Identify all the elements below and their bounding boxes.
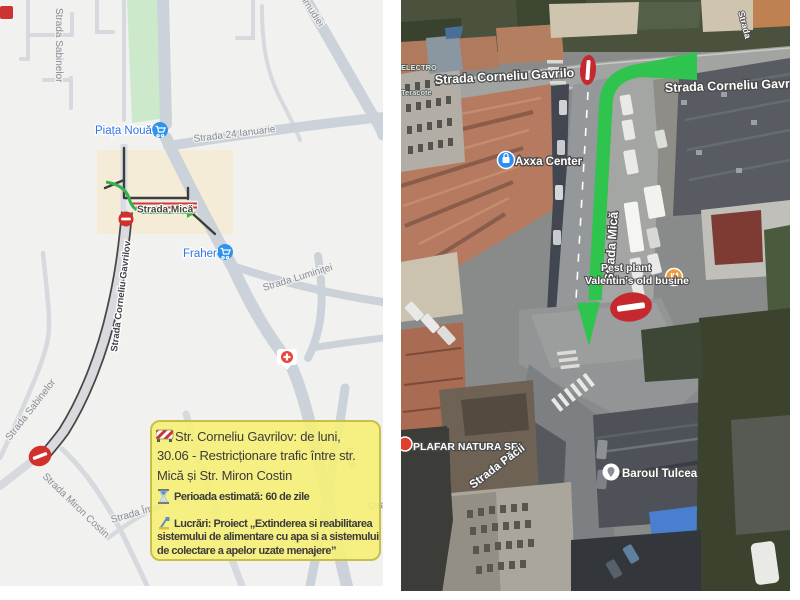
svg-text:Valentin's old busine: Valentin's old busine [585, 275, 689, 287]
svg-text:Teracote: Teracote [401, 88, 432, 97]
svg-text:Pest plant: Pest plant [601, 262, 652, 274]
svg-text:Fraher: Fraher [183, 248, 217, 260]
svg-text:Piața Nouă: Piața Nouă [95, 125, 153, 137]
svg-text:Axxa Center: Axxa Center [515, 156, 583, 168]
svg-text:ELECTRO: ELECTRO [401, 63, 437, 72]
svg-text:Strada Mică: Strada Mică [137, 205, 194, 216]
svg-text:Strada Sabinelor: Strada Sabinelor [53, 8, 64, 83]
svg-text:Baroul Tulcea: Baroul Tulcea [622, 468, 698, 480]
